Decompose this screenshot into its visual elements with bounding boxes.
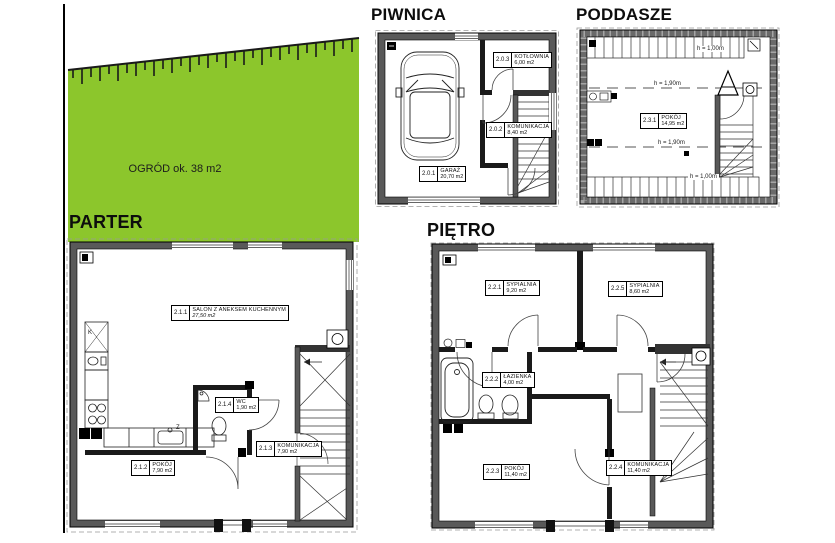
- room-label-salon: 2.1.1 SALON Z ANEKSEM KUCHENNYM27,50 m2: [171, 305, 289, 321]
- room-number: 2.0.3: [494, 53, 512, 67]
- pietro-floor-plan: [430, 242, 716, 532]
- room-area: 11,40 m2: [627, 468, 669, 474]
- title-piwnica: PIWNICA: [371, 5, 446, 25]
- room-number: 2.2.1: [486, 281, 504, 295]
- room-label-garaz: 2.0.1 GARAŻ20,70 m2: [419, 166, 466, 182]
- vent-icon: [387, 42, 396, 50]
- garden-label: OGRÓD ok. 38 m2: [108, 163, 242, 175]
- room-area: 8,60 m2: [629, 289, 659, 295]
- room-number: 2.0.1: [420, 167, 438, 181]
- room-label-sypialnia-1: 2.2.1 SYPIALNIA9,20 m2: [485, 280, 540, 296]
- height-label-bottom: h = 1,00m: [688, 174, 719, 180]
- fixture-letter-z: Z: [176, 425, 180, 431]
- room-number: 2.1.4: [216, 398, 234, 412]
- room-area: 9,20 m2: [506, 288, 536, 294]
- room-label-wc: 2.1.4 WC1,90 m2: [215, 397, 259, 413]
- vent-icon: [443, 255, 456, 265]
- room-area: 6,00 m2: [514, 60, 549, 66]
- room-number: 2.2.2: [483, 373, 501, 387]
- title-poddasze: PODDASZE: [576, 5, 672, 25]
- room-number: 2.2.5: [609, 282, 627, 296]
- sheet-border-line: [63, 4, 65, 533]
- floor-plan-sheet: OGRÓD ok. 38 m2 PIWNICA PODDASZE PARTER …: [0, 0, 835, 543]
- room-label-komunikacja-parter: 2.1.3 KOMUNIKACJA7,90 m2: [256, 441, 322, 457]
- room-number: 2.1.2: [132, 461, 150, 475]
- room-label-lazienka: 2.2.2 ŁAZIENKA4,00 m2: [482, 372, 535, 388]
- garage-door: [408, 198, 480, 205]
- vent-icon: [80, 252, 93, 263]
- room-label-komunikacja-piwnica: 2.0.2 KOMUNIKACJA8,40 m2: [486, 122, 552, 138]
- room-area: 11,40 m2: [504, 472, 527, 478]
- boiler-icon: [327, 330, 348, 348]
- room-area: 27,50 m2: [192, 313, 286, 319]
- room-area: 7,90 m2: [152, 468, 172, 474]
- boiler-icon: [743, 83, 757, 96]
- title-pietro: PIĘTRO: [427, 220, 495, 241]
- room-area: 8,40 m2: [507, 130, 549, 136]
- room-label-pokoj-pietro: 2.2.3 POKÓJ11,40 m2: [483, 464, 530, 480]
- boiler-icon: [692, 348, 710, 365]
- title-parter: PARTER: [69, 212, 143, 233]
- room-number: 2.2.3: [484, 465, 502, 479]
- room-number: 2.0.2: [487, 123, 505, 137]
- room-area: 4,00 m2: [503, 380, 531, 386]
- height-label-top: h = 1,00m: [695, 46, 726, 52]
- room-number: 2.1.1: [172, 306, 190, 320]
- garden-area: [63, 28, 361, 242]
- wardrobe-icon: [618, 374, 642, 412]
- room-label-pokoj-poddasze: 2.3.1 POKÓJ14,95 m2: [640, 113, 687, 129]
- fixture-letter-k: K: [88, 330, 92, 336]
- room-number: 2.2.4: [607, 461, 625, 475]
- window: [455, 34, 478, 41]
- room-label-komunikacja-pietro: 2.2.4 KOMUNIKACJA11,40 m2: [606, 460, 672, 476]
- room-area: 7,90 m2: [277, 449, 319, 455]
- height-label-mid1: h = 1,90m: [652, 81, 683, 87]
- room-area: 1,90 m2: [236, 405, 256, 411]
- room-label-pokoj-parter: 2.1.2 POKÓJ7,90 m2: [131, 460, 175, 476]
- room-area: 14,95 m2: [661, 121, 684, 127]
- room-label-kotlownia: 2.0.3 KOTŁOWNIA6,00 m2: [493, 52, 552, 68]
- room-label-sypialnia-2: 2.2.5 SYPIALNIA8,60 m2: [608, 281, 663, 297]
- room-number: 2.3.1: [641, 114, 659, 128]
- height-label-mid2: h = 1,90m: [656, 140, 687, 146]
- room-area: 20,70 m2: [440, 174, 463, 180]
- room-number: 2.1.3: [257, 442, 275, 456]
- parter-floor-plan: [66, 238, 358, 534]
